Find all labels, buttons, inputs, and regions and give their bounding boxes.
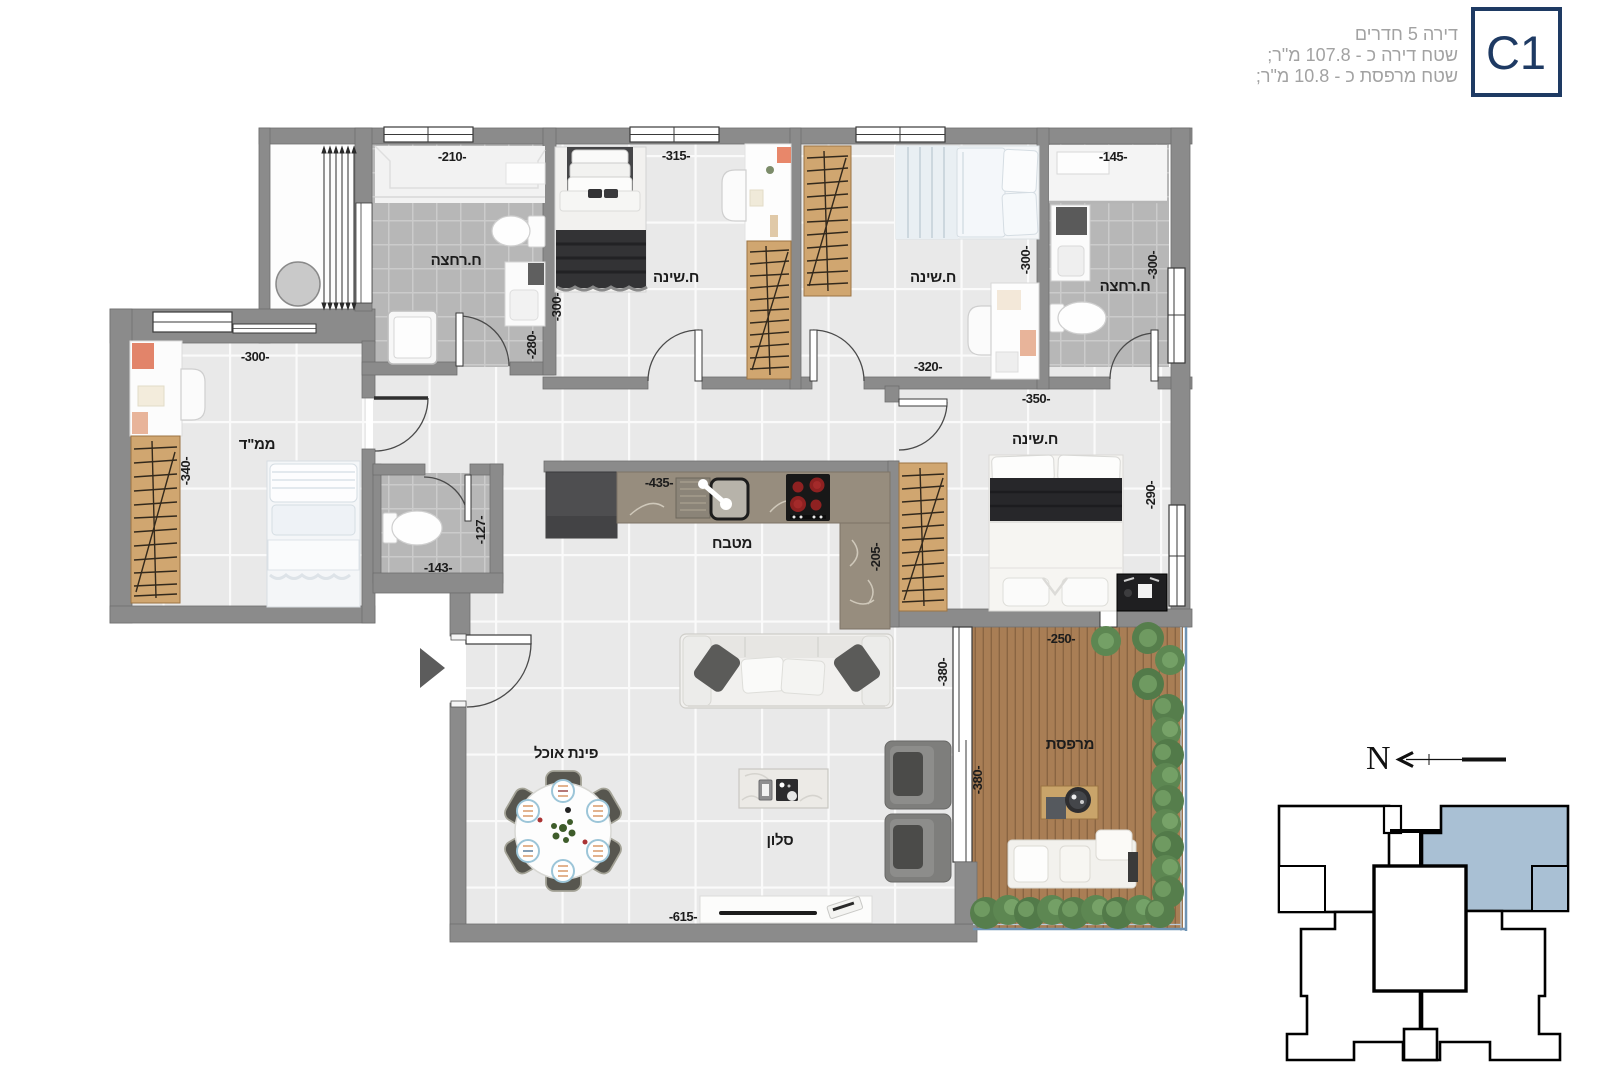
svg-text:ח.רחצה: ח.רחצה xyxy=(431,252,482,269)
svg-text:-380-: -380- xyxy=(970,766,985,794)
svg-text:-300-: -300- xyxy=(1145,251,1160,279)
svg-text:-210-: -210- xyxy=(438,149,466,164)
svg-text:סלון: סלון xyxy=(767,832,794,849)
svg-text:פינת אוכל: פינת אוכל xyxy=(534,745,598,762)
svg-text:ח.שינה: ח.שינה xyxy=(910,269,956,286)
svg-text:שטח דירה כ - 107.8 מ"ר;: שטח דירה כ - 107.8 מ"ר; xyxy=(1267,45,1458,65)
svg-text:-315-: -315- xyxy=(662,148,690,163)
svg-text:-350-: -350- xyxy=(1022,391,1050,406)
svg-text:מרפסת: מרפסת xyxy=(1046,736,1094,753)
svg-text:N: N xyxy=(1366,740,1391,777)
svg-text:ח.רחצה: ח.רחצה xyxy=(1100,278,1151,295)
svg-text:-300-: -300- xyxy=(241,349,269,364)
svg-text:-280-: -280- xyxy=(524,331,539,359)
svg-text:-127-: -127- xyxy=(473,516,488,544)
svg-text:שטח מרפסת כ - 10.8 מ"ר;: שטח מרפסת כ - 10.8 מ"ר; xyxy=(1256,66,1458,86)
svg-text:-205-: -205- xyxy=(868,543,883,571)
svg-text:-300-: -300- xyxy=(549,293,564,321)
svg-text:-250-: -250- xyxy=(1047,631,1075,646)
svg-text:-435-: -435- xyxy=(645,475,673,490)
svg-text:ח.שינה: ח.שינה xyxy=(653,269,699,286)
svg-text:-145-: -145- xyxy=(1099,149,1127,164)
svg-text:ח.שינה: ח.שינה xyxy=(1012,431,1058,448)
svg-text:דירה 5 חדרים: דירה 5 חדרים xyxy=(1355,24,1458,44)
svg-text:-320-: -320- xyxy=(914,359,942,374)
svg-text:-340-: -340- xyxy=(178,457,193,485)
svg-text:-380-: -380- xyxy=(935,658,950,686)
svg-text:C1: C1 xyxy=(1486,26,1546,79)
svg-text:ממ"ד: ממ"ד xyxy=(239,436,275,453)
svg-text:מטבח: מטבח xyxy=(712,535,752,552)
svg-text:-143-: -143- xyxy=(424,560,452,575)
svg-text:-615-: -615- xyxy=(669,909,697,924)
svg-text:-300-: -300- xyxy=(1018,246,1033,274)
svg-text:-290-: -290- xyxy=(1143,481,1158,509)
